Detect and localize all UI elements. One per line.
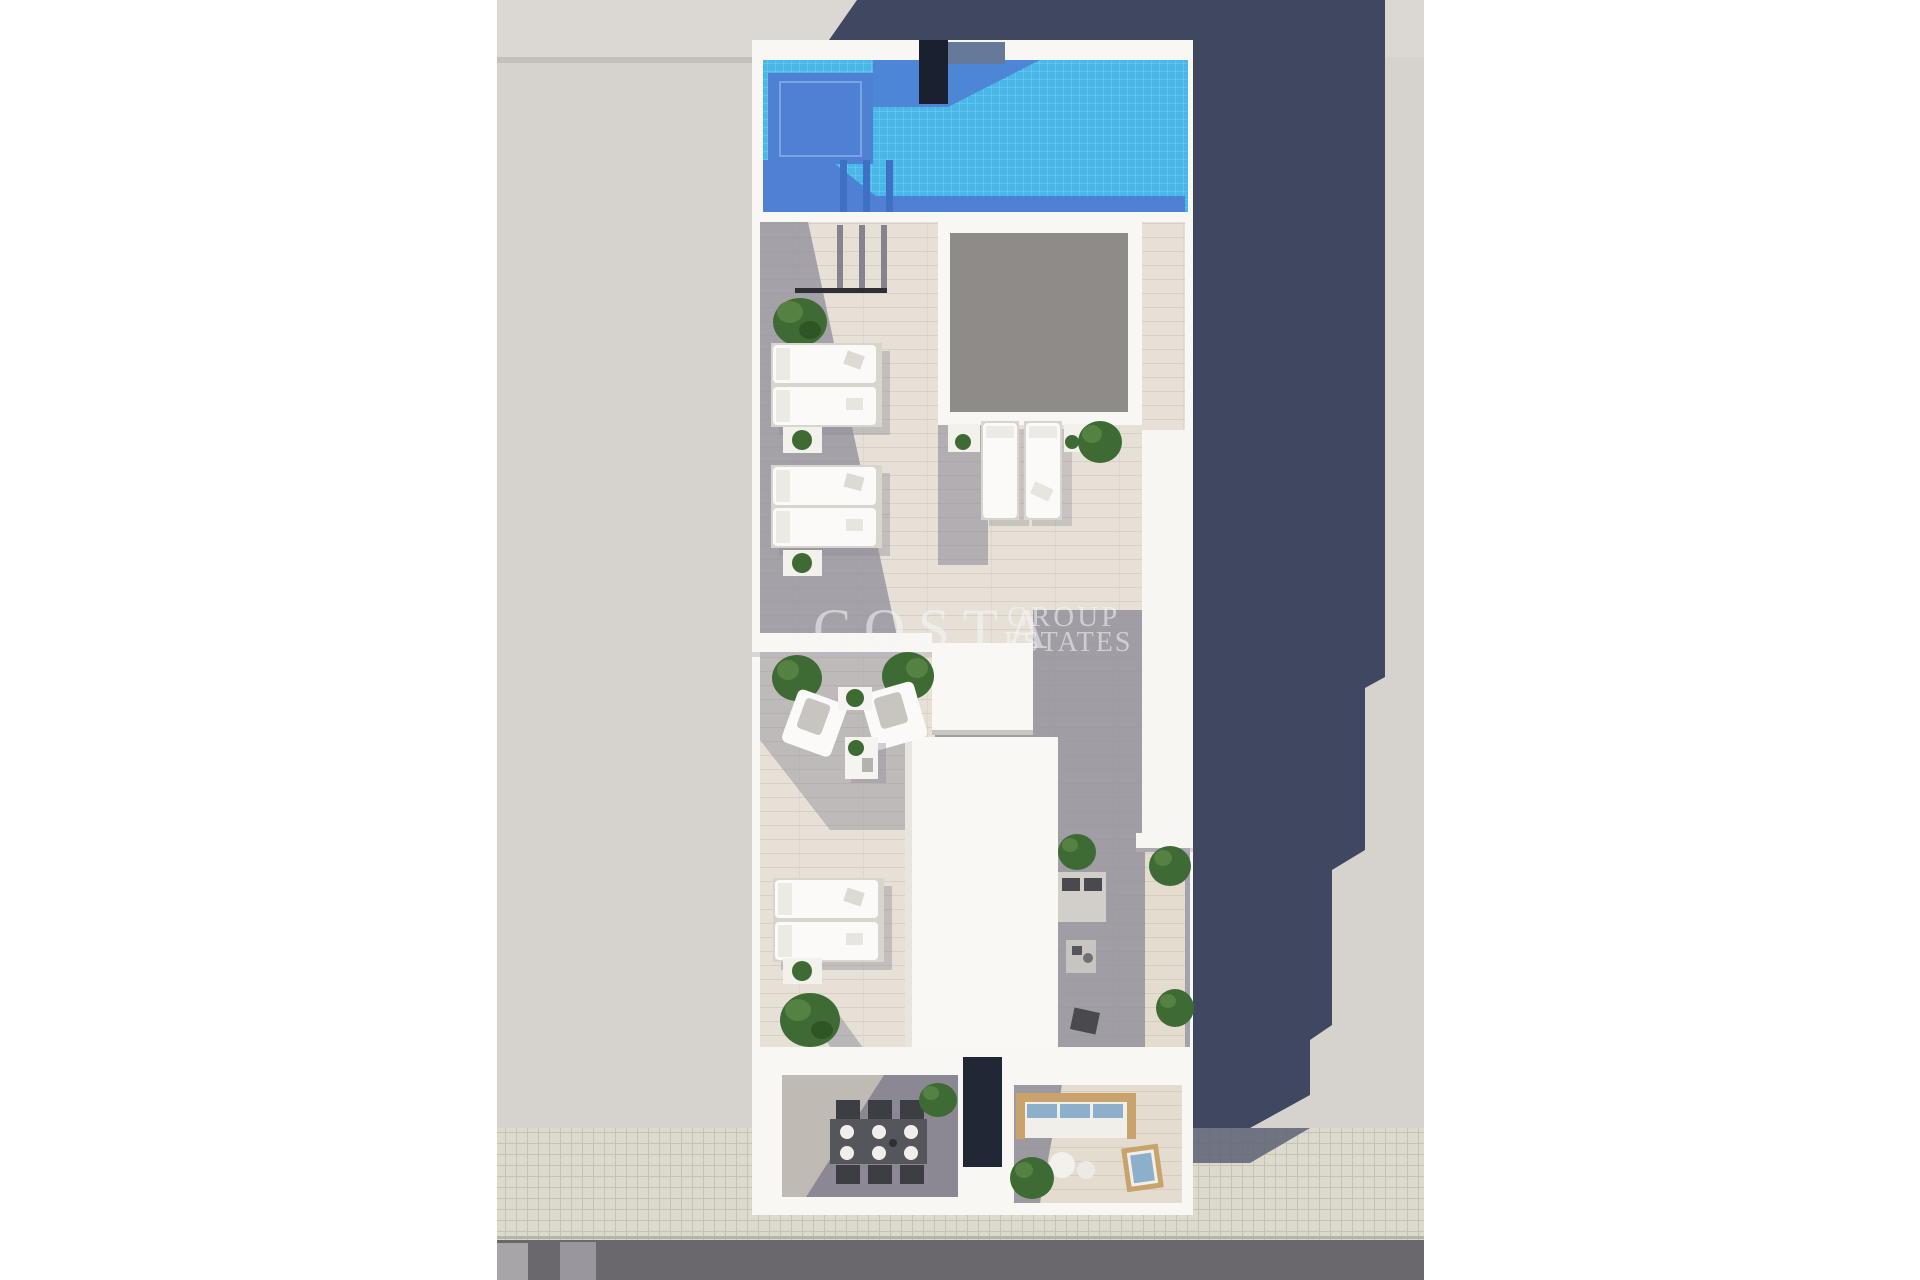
plate — [872, 1125, 886, 1139]
skylight — [938, 222, 1142, 425]
right-side-wall — [1142, 430, 1192, 845]
railing-shadow-1 — [840, 160, 847, 212]
side-table — [783, 958, 822, 984]
bush — [780, 993, 840, 1047]
bench-cushion — [1062, 878, 1080, 891]
bench-cushion — [1084, 878, 1102, 891]
plate — [904, 1146, 918, 1160]
bush — [1149, 846, 1191, 886]
pool-dark-opening — [919, 40, 948, 104]
railing-shadow-2 — [863, 160, 870, 212]
rooftop-render: COSTA GROUP ESTATES — [0, 0, 1920, 1280]
bush — [1156, 989, 1194, 1027]
sunken-pool-shadow — [768, 73, 873, 164]
neighbor-roof-edge — [497, 57, 772, 63]
road-marking-strip — [560, 1242, 596, 1280]
plate — [872, 1146, 886, 1160]
watermark-estates: ESTATES — [1004, 629, 1132, 657]
swimming-pool — [763, 40, 1188, 212]
core-structure-slab — [905, 737, 1058, 1047]
side-table — [838, 687, 872, 710]
wood-armchair — [1121, 1144, 1164, 1193]
dining-chair — [868, 1165, 892, 1184]
bush — [1010, 1157, 1054, 1199]
road — [497, 1240, 1424, 1280]
dining-chair — [900, 1165, 924, 1184]
plate — [904, 1125, 918, 1139]
plate — [840, 1125, 854, 1139]
sofa-terrace — [1002, 1060, 1192, 1210]
dining-chair — [868, 1100, 892, 1119]
railing-post-2 — [859, 225, 865, 288]
lounger — [771, 506, 890, 556]
bush — [1058, 834, 1096, 870]
railing-post-3 — [881, 225, 887, 288]
railing-shadow-3 — [886, 160, 893, 212]
curb-line — [497, 1236, 1424, 1239]
plate — [840, 1146, 854, 1160]
road-marking-left — [497, 1243, 528, 1280]
dining-chair — [836, 1100, 860, 1119]
coffee-table — [845, 737, 886, 783]
dining-chair — [836, 1165, 860, 1184]
bush — [919, 1083, 957, 1117]
sofa — [1016, 1093, 1136, 1139]
slab-left-edge — [905, 737, 912, 1047]
dining-terrace — [765, 1060, 975, 1213]
lounger — [981, 421, 1029, 526]
right-wall-ledge — [1136, 833, 1193, 848]
skylight-glass — [950, 233, 1128, 412]
railing-rail — [795, 288, 887, 293]
bush — [1078, 421, 1122, 463]
bush — [773, 298, 827, 346]
side-table — [783, 550, 822, 576]
round-pouf — [1077, 1161, 1095, 1179]
pool-gray-ledge — [948, 42, 1005, 64]
stair-opening — [963, 1057, 1002, 1167]
railing-post-1 — [837, 225, 843, 288]
core-structure-gap — [932, 730, 1033, 735]
side-table — [783, 427, 822, 453]
